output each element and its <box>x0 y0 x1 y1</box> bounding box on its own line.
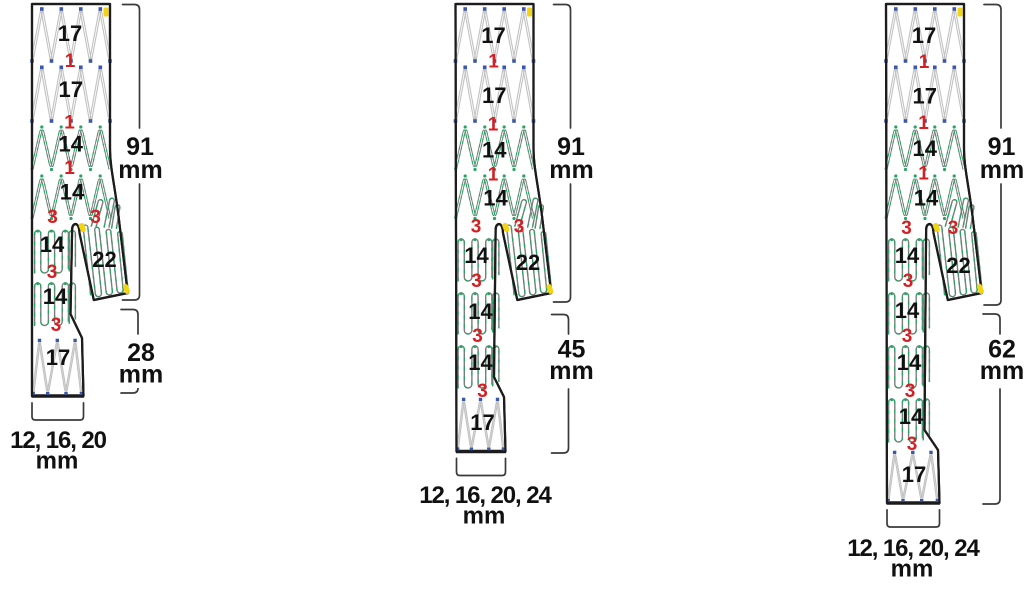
svg-text:3: 3 <box>902 326 913 347</box>
svg-text:14: 14 <box>899 404 924 429</box>
svg-text:mm: mm <box>119 361 163 389</box>
svg-text:17: 17 <box>913 84 937 109</box>
svg-text:mm: mm <box>549 357 593 385</box>
svg-text:3: 3 <box>472 326 483 347</box>
svg-text:14: 14 <box>895 298 920 323</box>
svg-text:22: 22 <box>92 247 116 272</box>
svg-text:14: 14 <box>914 186 939 211</box>
svg-text:14: 14 <box>482 138 507 163</box>
svg-text:mm: mm <box>36 448 79 475</box>
svg-text:22: 22 <box>516 250 540 275</box>
svg-text:3: 3 <box>903 271 914 292</box>
svg-text:3: 3 <box>471 217 482 238</box>
svg-text:17: 17 <box>482 83 506 108</box>
svg-text:14: 14 <box>468 299 493 324</box>
svg-text:mm: mm <box>549 156 593 184</box>
svg-text:mm: mm <box>891 556 934 583</box>
svg-text:1: 1 <box>919 52 930 73</box>
svg-text:17: 17 <box>59 77 83 102</box>
svg-text:14: 14 <box>895 243 920 268</box>
svg-text:14: 14 <box>40 232 65 257</box>
svg-text:3: 3 <box>90 207 101 228</box>
svg-text:1: 1 <box>64 158 75 179</box>
svg-text:3: 3 <box>47 207 58 228</box>
svg-text:17: 17 <box>470 410 494 435</box>
svg-text:3: 3 <box>905 381 916 402</box>
svg-text:1: 1 <box>65 51 76 72</box>
svg-text:14: 14 <box>468 350 493 375</box>
svg-text:1: 1 <box>918 164 929 185</box>
svg-text:3: 3 <box>948 218 959 239</box>
svg-text:1: 1 <box>918 113 929 134</box>
svg-text:3: 3 <box>907 434 918 455</box>
svg-text:mm: mm <box>980 156 1024 184</box>
svg-text:14: 14 <box>58 132 83 157</box>
svg-text:17: 17 <box>912 23 936 48</box>
svg-text:14: 14 <box>483 186 508 211</box>
svg-text:14: 14 <box>43 284 68 309</box>
svg-text:14: 14 <box>464 243 489 268</box>
svg-text:1: 1 <box>488 115 499 136</box>
svg-text:3: 3 <box>477 381 488 402</box>
svg-text:3: 3 <box>901 218 912 239</box>
svg-text:1: 1 <box>488 52 499 73</box>
svg-text:3: 3 <box>471 271 482 292</box>
svg-text:14: 14 <box>912 136 937 161</box>
svg-text:22: 22 <box>946 253 970 278</box>
svg-text:mm: mm <box>118 156 162 184</box>
svg-text:mm: mm <box>463 503 506 530</box>
svg-text:17: 17 <box>902 462 926 487</box>
svg-text:mm: mm <box>980 357 1024 385</box>
svg-text:17: 17 <box>481 23 505 48</box>
svg-text:1: 1 <box>488 165 499 186</box>
svg-text:3: 3 <box>514 217 525 238</box>
svg-text:14: 14 <box>60 180 85 205</box>
svg-text:14: 14 <box>897 350 922 375</box>
svg-text:17: 17 <box>58 21 82 46</box>
svg-text:17: 17 <box>46 345 70 370</box>
svg-text:3: 3 <box>47 262 58 283</box>
svg-text:1: 1 <box>64 113 75 134</box>
svg-text:3: 3 <box>51 315 62 336</box>
